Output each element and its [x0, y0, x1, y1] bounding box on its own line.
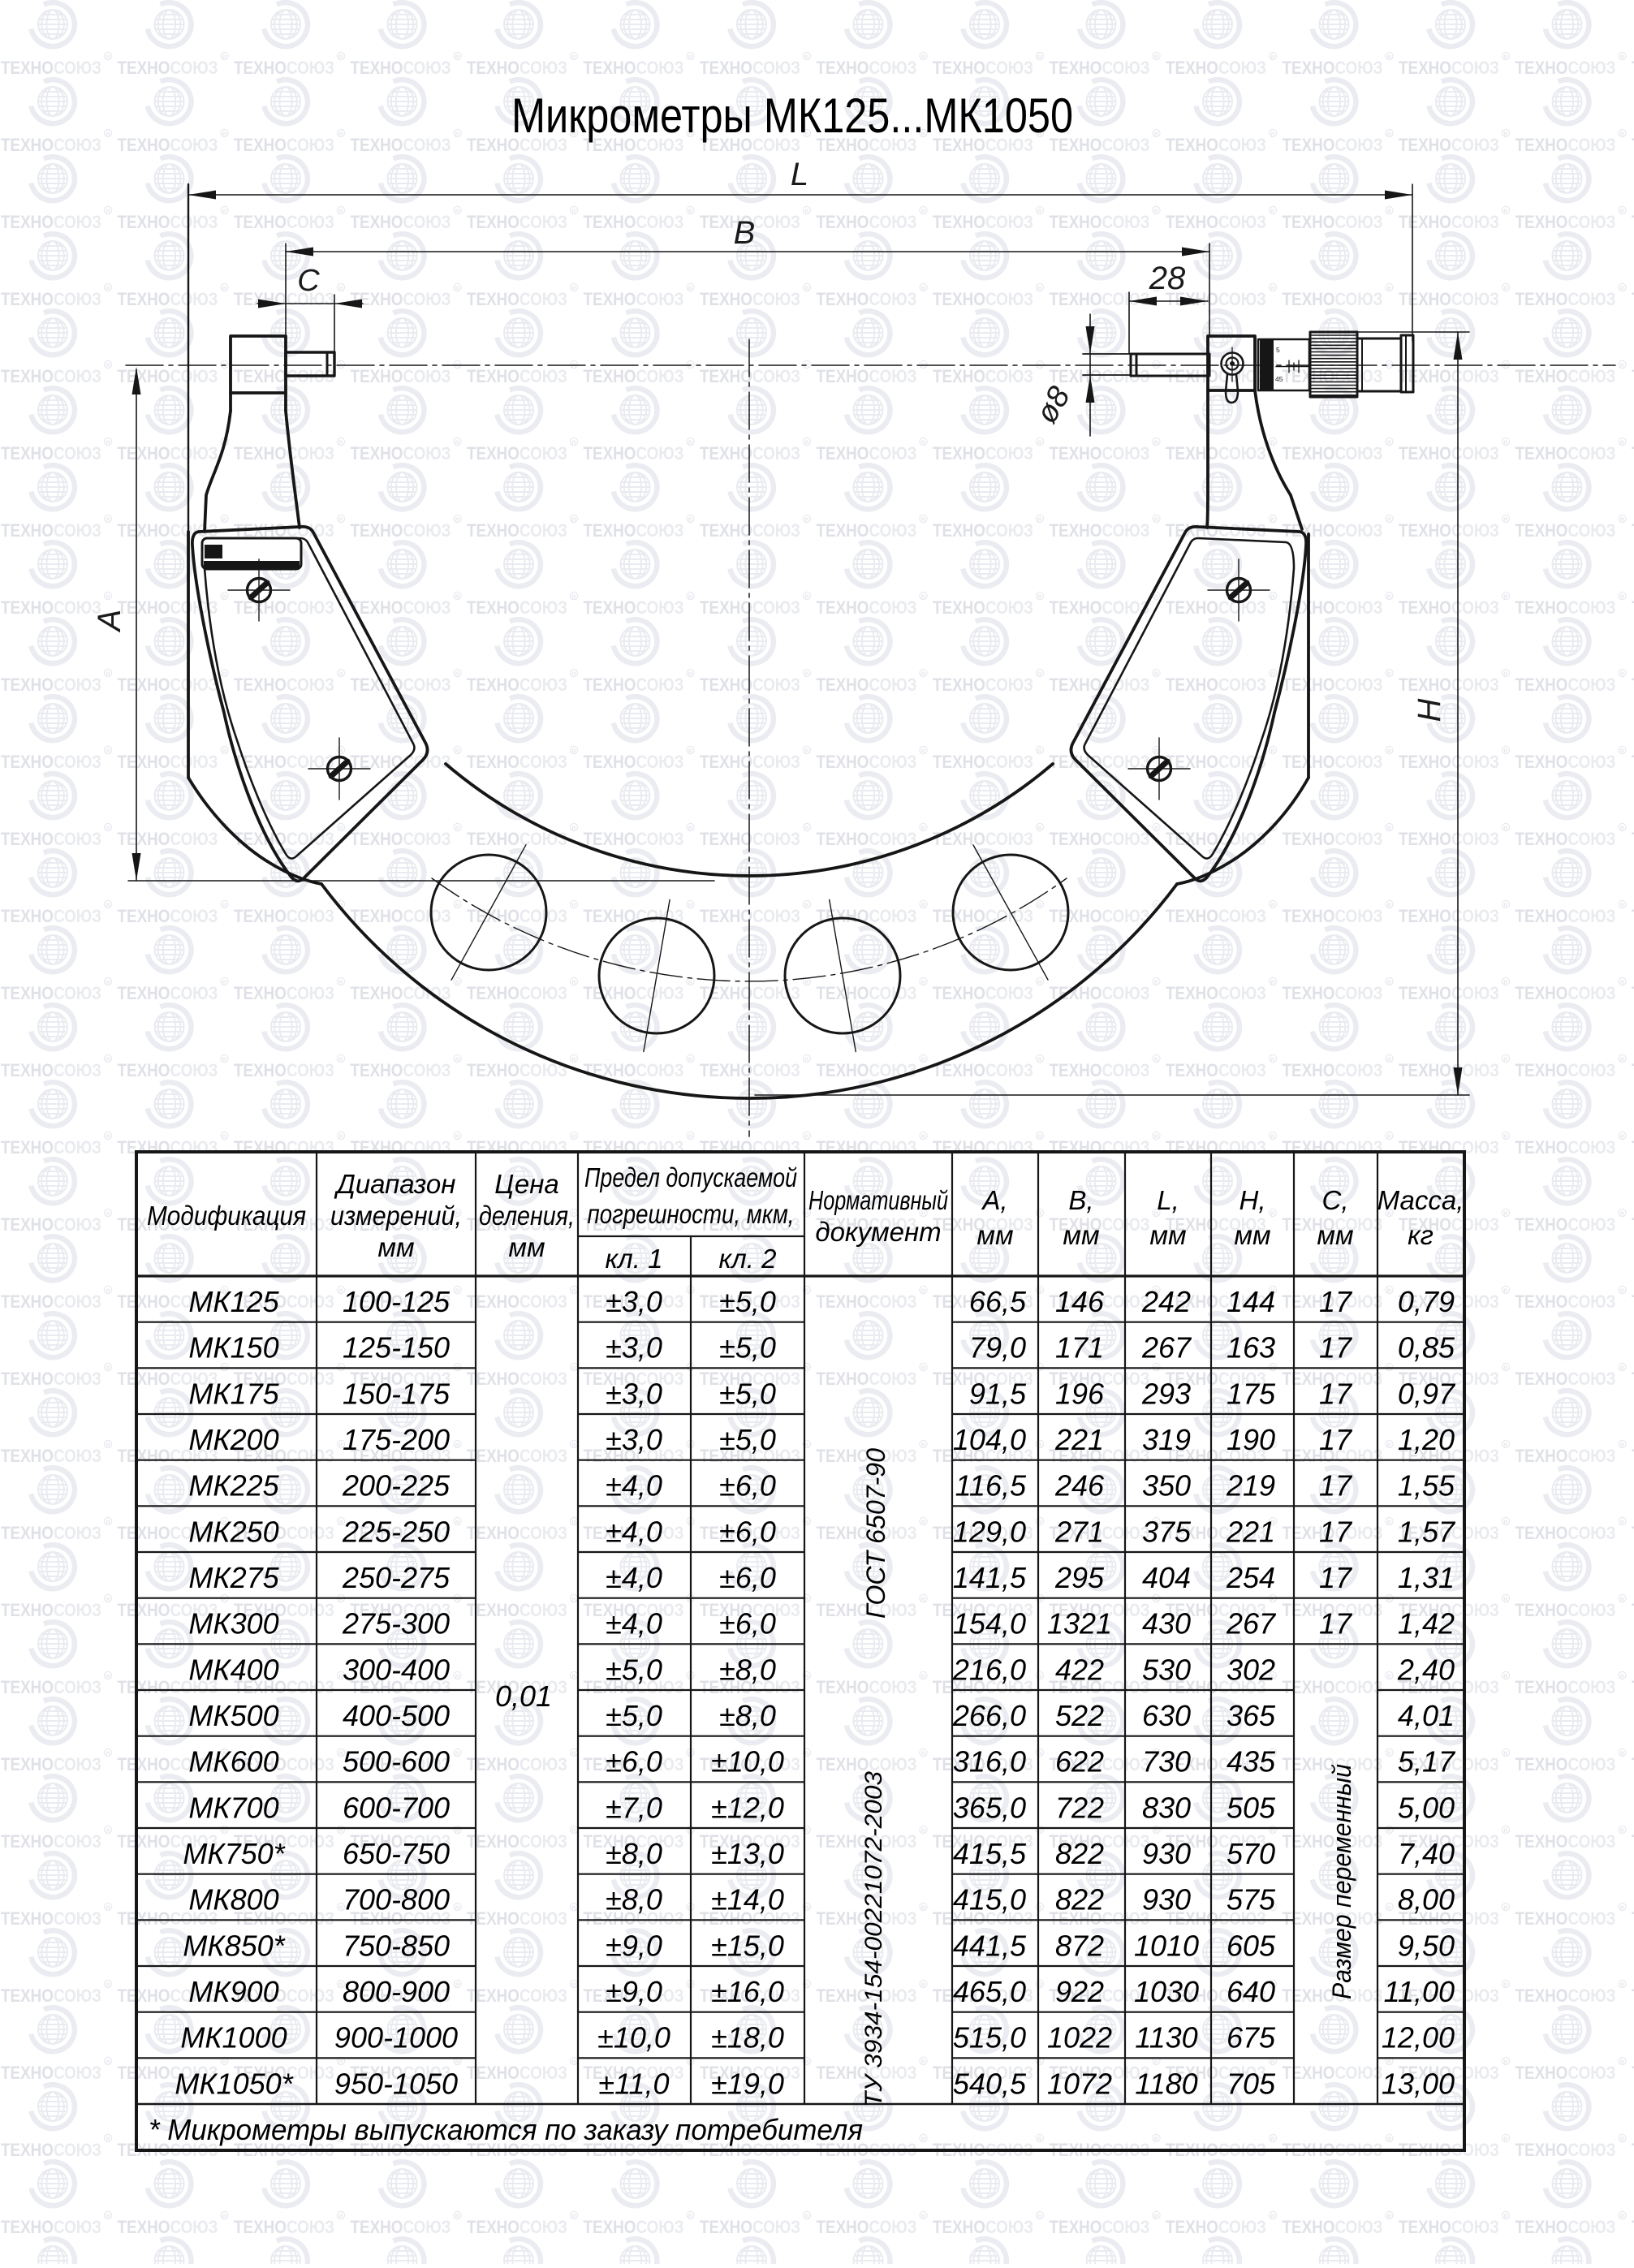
svg-text:B: B: [734, 215, 756, 251]
svg-text:ТУ 3934-154-00221072-2003: ТУ 3934-154-00221072-2003: [860, 1771, 887, 2107]
svg-text:930: 930: [1142, 1883, 1191, 1917]
svg-text:МК750*: МК750*: [183, 1837, 285, 1870]
svg-text:146: 146: [1055, 1285, 1105, 1318]
svg-text:±6,0: ±6,0: [719, 1469, 776, 1503]
svg-text:МК150: МК150: [188, 1331, 278, 1365]
svg-text:79,0: 79,0: [969, 1331, 1026, 1365]
svg-text:МК300: МК300: [188, 1607, 278, 1641]
svg-text:5,00: 5,00: [1398, 1791, 1455, 1824]
svg-text:МК225: МК225: [188, 1469, 279, 1503]
svg-text:441,5: 441,5: [953, 1929, 1027, 1962]
svg-text:МК850*: МК850*: [183, 1929, 285, 1962]
svg-text:17: 17: [1319, 1423, 1353, 1456]
svg-text:400-500: 400-500: [343, 1699, 450, 1732]
svg-text:А,: А,: [981, 1185, 1007, 1215]
svg-text:175: 175: [1227, 1377, 1276, 1410]
svg-text:190: 190: [1227, 1423, 1275, 1456]
svg-text:±10,0: ±10,0: [711, 1745, 784, 1779]
svg-text:266,0: 266,0: [952, 1699, 1026, 1732]
svg-text:300-400: 300-400: [343, 1653, 450, 1686]
svg-text:375: 375: [1142, 1515, 1192, 1548]
svg-text:302: 302: [1227, 1653, 1275, 1686]
svg-text:17: 17: [1319, 1377, 1353, 1410]
svg-text:500-600: 500-600: [343, 1745, 450, 1779]
svg-text:1321: 1321: [1047, 1607, 1112, 1641]
svg-text:±5,0: ±5,0: [606, 1653, 662, 1686]
svg-text:293: 293: [1141, 1377, 1191, 1410]
svg-text:±15,0: ±15,0: [711, 1929, 784, 1962]
svg-text:H: H: [1412, 698, 1447, 722]
svg-text:422: 422: [1055, 1653, 1104, 1686]
svg-text:±4,0: ±4,0: [606, 1607, 662, 1641]
svg-text:600-700: 600-700: [343, 1791, 450, 1824]
svg-text:163: 163: [1227, 1331, 1275, 1365]
svg-text:±4,0: ±4,0: [606, 1561, 662, 1594]
svg-text:Цена: Цена: [494, 1169, 559, 1199]
svg-text:МК800: МК800: [188, 1883, 278, 1917]
svg-text:404: 404: [1142, 1561, 1191, 1594]
svg-text:±9,0: ±9,0: [606, 1975, 662, 2008]
svg-text:±11,0: ±11,0: [598, 2067, 669, 2100]
svg-text:830: 830: [1142, 1791, 1191, 1824]
svg-text:622: 622: [1055, 1745, 1104, 1779]
svg-text:45: 45: [1275, 375, 1283, 383]
svg-text:540,5: 540,5: [953, 2067, 1027, 2100]
svg-text:17: 17: [1319, 1561, 1353, 1594]
svg-text:141,5: 141,5: [953, 1561, 1027, 1594]
svg-text:275-300: 275-300: [342, 1607, 450, 1641]
svg-text:мм: мм: [1317, 1220, 1353, 1250]
svg-text:7,40: 7,40: [1398, 1837, 1455, 1870]
svg-text:МК700: МК700: [188, 1791, 278, 1824]
svg-text:ГОСТ 6507-90: ГОСТ 6507-90: [861, 1448, 890, 1619]
svg-text:мм: мм: [1234, 1220, 1270, 1250]
svg-text:125-150: 125-150: [343, 1331, 450, 1365]
svg-text:435: 435: [1227, 1745, 1276, 1779]
svg-text:116,5: 116,5: [955, 1469, 1027, 1503]
svg-text:±4,0: ±4,0: [606, 1515, 662, 1548]
svg-text:8,00: 8,00: [1398, 1883, 1455, 1917]
svg-text:144: 144: [1227, 1285, 1275, 1318]
svg-text:мм: мм: [1149, 1220, 1186, 1250]
svg-text:±14,0: ±14,0: [711, 1883, 784, 1917]
svg-text:A: A: [92, 610, 127, 633]
svg-text:267: 267: [1226, 1607, 1277, 1641]
svg-text:±3,0: ±3,0: [606, 1331, 662, 1365]
svg-text:13,00: 13,00: [1382, 2067, 1455, 2100]
svg-text:±10,0: ±10,0: [597, 2021, 670, 2055]
svg-text:515,0: 515,0: [953, 2021, 1026, 2055]
svg-text:2,40: 2,40: [1397, 1653, 1455, 1686]
svg-text:1,55: 1,55: [1398, 1469, 1455, 1503]
svg-text:530: 530: [1142, 1653, 1191, 1686]
svg-text:350: 350: [1142, 1469, 1191, 1503]
svg-text:В,: В,: [1068, 1185, 1093, 1215]
svg-text:5,17: 5,17: [1398, 1745, 1456, 1779]
svg-text:216,0: 216,0: [952, 1653, 1026, 1686]
svg-text:кг: кг: [1408, 1220, 1434, 1250]
svg-text:640: 640: [1227, 1975, 1275, 2008]
svg-text:L: L: [791, 157, 808, 192]
svg-text:Масса,: Масса,: [1377, 1185, 1464, 1215]
svg-text:12,00: 12,00: [1382, 2021, 1455, 2055]
svg-text:900-1000: 900-1000: [334, 2021, 458, 2055]
svg-text:МК125: МК125: [188, 1285, 279, 1318]
svg-text:1030: 1030: [1134, 1975, 1199, 2008]
svg-text:мм: мм: [977, 1220, 1013, 1250]
svg-text:17: 17: [1319, 1285, 1353, 1318]
svg-text:365: 365: [1227, 1699, 1276, 1732]
svg-text:171: 171: [1055, 1331, 1104, 1365]
svg-text:Предел допускаемой: Предел допускаемой: [584, 1162, 797, 1192]
svg-text:570: 570: [1227, 1837, 1275, 1870]
svg-text:±18,0: ±18,0: [711, 2021, 784, 2055]
svg-text:±3,0: ±3,0: [606, 1285, 662, 1318]
svg-text:1022: 1022: [1047, 2021, 1112, 2055]
svg-text:0,01: 0,01: [495, 1679, 552, 1713]
svg-text:±5,0: ±5,0: [606, 1699, 662, 1732]
svg-text:±8,0: ±8,0: [719, 1699, 776, 1732]
svg-text:365,0: 365,0: [953, 1791, 1026, 1824]
svg-text:730: 730: [1142, 1745, 1191, 1779]
svg-text:700-800: 700-800: [343, 1883, 450, 1917]
svg-text:430: 430: [1142, 1607, 1191, 1641]
svg-text:±6,0: ±6,0: [719, 1515, 776, 1548]
svg-text:0,79: 0,79: [1398, 1285, 1455, 1318]
svg-text:1,20: 1,20: [1398, 1423, 1455, 1456]
svg-text:±6,0: ±6,0: [606, 1745, 662, 1779]
svg-text:±5,0: ±5,0: [719, 1377, 776, 1410]
svg-text:МК275: МК275: [188, 1561, 279, 1594]
svg-text:С,: С,: [1322, 1185, 1349, 1215]
svg-text:295: 295: [1054, 1561, 1105, 1594]
svg-text:МК175: МК175: [188, 1377, 279, 1410]
svg-text:Размер переменный: Размер переменный: [1327, 1764, 1356, 1999]
svg-text:5: 5: [1276, 346, 1280, 354]
svg-text:675: 675: [1227, 2021, 1276, 2055]
svg-text:505: 505: [1227, 1791, 1276, 1824]
svg-text:деления,: деления,: [479, 1201, 575, 1231]
svg-text:Диапазон: Диапазон: [334, 1169, 456, 1199]
svg-text:Микрометры МК125...МК1050: Микрометры МК125...МК1050: [511, 88, 1073, 143]
svg-text:522: 522: [1055, 1699, 1104, 1732]
svg-text:246: 246: [1054, 1469, 1105, 1503]
svg-text:9,50: 9,50: [1398, 1929, 1455, 1962]
svg-text:±13,0: ±13,0: [711, 1837, 784, 1870]
svg-text:мм: мм: [1063, 1220, 1099, 1250]
svg-text:250-275: 250-275: [342, 1561, 451, 1594]
svg-text:±8,0: ±8,0: [606, 1837, 662, 1870]
svg-text:±5,0: ±5,0: [719, 1285, 776, 1318]
svg-text:МК1000: МК1000: [180, 2021, 287, 2055]
svg-text:1,42: 1,42: [1398, 1607, 1455, 1641]
svg-text:±3,0: ±3,0: [606, 1377, 662, 1410]
svg-text:мм: мм: [377, 1232, 414, 1262]
svg-text:650-750: 650-750: [343, 1837, 450, 1870]
svg-text:±12,0: ±12,0: [711, 1791, 784, 1824]
svg-text:C: C: [297, 264, 320, 298]
svg-text:Н,: Н,: [1240, 1185, 1266, 1215]
svg-text:316,0: 316,0: [953, 1745, 1026, 1779]
svg-text:219: 219: [1226, 1469, 1275, 1503]
svg-text:4,01: 4,01: [1398, 1699, 1455, 1732]
svg-text:930: 930: [1142, 1837, 1191, 1870]
svg-text:±7,0: ±7,0: [606, 1791, 662, 1824]
svg-text:* Микрометры выпускаются по за: * Микрометры выпускаются по заказу потре…: [149, 2113, 863, 2146]
svg-text:±9,0: ±9,0: [606, 1929, 662, 1962]
svg-text:722: 722: [1055, 1791, 1104, 1824]
svg-text:±5,0: ±5,0: [719, 1423, 776, 1456]
svg-text:МК600: МК600: [188, 1745, 278, 1779]
svg-text:погрешности, мкм,: погрешности, мкм,: [588, 1199, 795, 1229]
svg-text:17: 17: [1319, 1515, 1353, 1548]
svg-text:±6,0: ±6,0: [719, 1607, 776, 1641]
svg-text:кл. 2: кл. 2: [719, 1244, 777, 1274]
svg-text:МК1050*: МК1050*: [175, 2067, 293, 2100]
svg-text:465,0: 465,0: [953, 1975, 1026, 2008]
svg-text:±19,0: ±19,0: [711, 2067, 784, 2100]
svg-text:221: 221: [1054, 1423, 1104, 1456]
svg-text:150-175: 150-175: [343, 1377, 451, 1410]
svg-text:605: 605: [1227, 1929, 1276, 1962]
svg-text:±6,0: ±6,0: [719, 1561, 776, 1594]
svg-text:750-850: 750-850: [343, 1929, 450, 1962]
svg-text:28: 28: [1149, 261, 1186, 296]
svg-text:1130: 1130: [1135, 2021, 1197, 2055]
svg-text:91,5: 91,5: [969, 1377, 1027, 1410]
svg-text:11,00: 11,00: [1384, 1975, 1455, 2008]
svg-text:17: 17: [1319, 1331, 1353, 1365]
svg-text:129,0: 129,0: [953, 1515, 1026, 1548]
svg-text:200-225: 200-225: [342, 1469, 451, 1503]
svg-text:221: 221: [1226, 1515, 1275, 1548]
svg-text:872: 872: [1055, 1929, 1104, 1962]
svg-text:575: 575: [1227, 1883, 1276, 1917]
svg-text:822: 822: [1055, 1883, 1104, 1917]
svg-text:630: 630: [1142, 1699, 1191, 1732]
svg-text:17: 17: [1319, 1469, 1353, 1503]
svg-text:271: 271: [1054, 1515, 1104, 1548]
svg-text:175-200: 175-200: [343, 1423, 450, 1456]
svg-text:104,0: 104,0: [953, 1423, 1026, 1456]
svg-text:950-1050: 950-1050: [334, 2067, 458, 2100]
svg-text:196: 196: [1055, 1377, 1105, 1410]
svg-text:319: 319: [1142, 1423, 1191, 1456]
svg-text:100-125: 100-125: [343, 1285, 451, 1318]
svg-text:66,5: 66,5: [969, 1285, 1027, 1318]
svg-text:±4,0: ±4,0: [606, 1469, 662, 1503]
svg-text:1072: 1072: [1047, 2067, 1112, 2100]
svg-text:705: 705: [1227, 2067, 1276, 2100]
svg-text:±3,0: ±3,0: [606, 1423, 662, 1456]
svg-text:±8,0: ±8,0: [719, 1653, 776, 1686]
svg-text:МК400: МК400: [188, 1653, 278, 1686]
svg-text:822: 822: [1055, 1837, 1104, 1870]
svg-text:1,31: 1,31: [1398, 1561, 1455, 1594]
svg-text:МК250: МК250: [188, 1515, 278, 1548]
svg-text:17: 17: [1319, 1607, 1353, 1641]
svg-text:кл. 1: кл. 1: [606, 1244, 663, 1274]
svg-text:0,85: 0,85: [1398, 1331, 1455, 1365]
svg-text:267: 267: [1141, 1331, 1192, 1365]
svg-text:Нормативный: Нормативный: [808, 1185, 948, 1215]
svg-text:254: 254: [1226, 1561, 1275, 1594]
svg-text:0,97: 0,97: [1398, 1377, 1456, 1410]
svg-text:1180: 1180: [1135, 2067, 1197, 2100]
svg-text:±8,0: ±8,0: [606, 1883, 662, 1917]
svg-text:МК900: МК900: [188, 1975, 278, 2008]
svg-text:документ: документ: [815, 1217, 941, 1247]
svg-text:154,0: 154,0: [953, 1607, 1026, 1641]
svg-text:мм: мм: [508, 1232, 545, 1262]
svg-text:±5,0: ±5,0: [719, 1331, 776, 1365]
svg-text:922: 922: [1055, 1975, 1104, 2008]
svg-text:800-900: 800-900: [343, 1975, 450, 2008]
svg-text:225-250: 225-250: [342, 1515, 450, 1548]
svg-text:415,5: 415,5: [953, 1837, 1027, 1870]
svg-text:МК200: МК200: [188, 1423, 278, 1456]
svg-text:242: 242: [1141, 1285, 1191, 1318]
svg-text:L,: L,: [1157, 1185, 1179, 1215]
svg-text:измерений,: измерений,: [330, 1201, 462, 1231]
svg-text:±16,0: ±16,0: [711, 1975, 784, 2008]
svg-text:Модификация: Модификация: [147, 1201, 306, 1231]
svg-text:415,0: 415,0: [953, 1883, 1026, 1917]
svg-text:1,57: 1,57: [1398, 1515, 1456, 1548]
svg-text:1010: 1010: [1134, 1929, 1199, 1962]
svg-text:МК500: МК500: [188, 1699, 278, 1732]
